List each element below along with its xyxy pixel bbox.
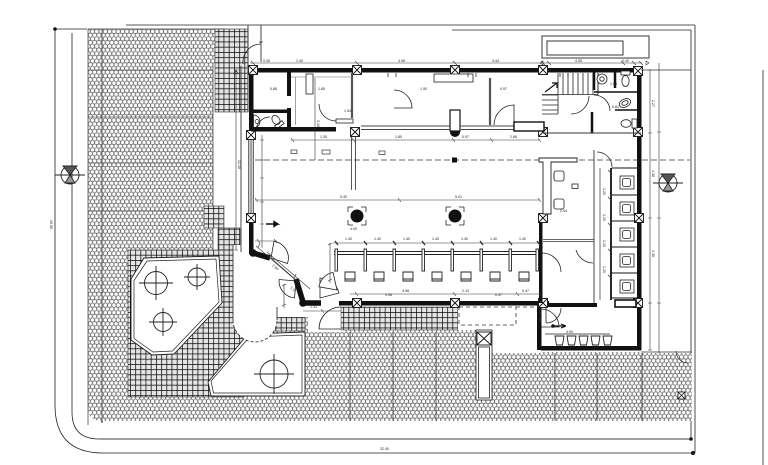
svg-text:2.27: 2.27 <box>651 100 655 107</box>
svg-text:1.40: 1.40 <box>403 237 410 241</box>
svg-text:0.47: 0.47 <box>522 289 529 293</box>
svg-text:5.40: 5.40 <box>340 195 347 199</box>
svg-text:1.05: 1.05 <box>610 82 617 86</box>
svg-text:0.40: 0.40 <box>622 59 629 63</box>
svg-text:4.98: 4.98 <box>385 293 392 297</box>
svg-text:1.40: 1.40 <box>461 237 468 241</box>
svg-text:1.85: 1.85 <box>395 135 402 139</box>
svg-text:1.20: 1.20 <box>602 240 606 247</box>
svg-text:1.40: 1.40 <box>345 237 352 241</box>
svg-text:4.98: 4.98 <box>398 59 405 63</box>
svg-text:1.20: 1.20 <box>602 214 606 221</box>
svg-text:4.55: 4.55 <box>575 59 582 63</box>
svg-text:12.19: 12.19 <box>237 160 241 169</box>
svg-text:1.20: 1.20 <box>602 266 606 273</box>
svg-text:2.66: 2.66 <box>510 135 517 139</box>
svg-text:1.40: 1.40 <box>519 237 526 241</box>
svg-text:0.97: 0.97 <box>500 87 507 91</box>
svg-text:1.40: 1.40 <box>490 237 497 241</box>
svg-text:4.09: 4.09 <box>350 227 357 231</box>
svg-text:1.40: 1.40 <box>374 237 381 241</box>
svg-text:1.30: 1.30 <box>320 135 327 139</box>
svg-text:19.95: 19.95 <box>49 220 53 229</box>
svg-text:0.40: 0.40 <box>263 59 270 63</box>
svg-text:2.13: 2.13 <box>462 289 469 293</box>
svg-text:0.47: 0.47 <box>495 293 502 297</box>
svg-text:1.40: 1.40 <box>432 237 439 241</box>
svg-text:4.35: 4.35 <box>651 250 655 257</box>
svg-text:2.44: 2.44 <box>560 209 567 213</box>
svg-text:32.40: 32.40 <box>380 447 389 451</box>
svg-text:1.31: 1.31 <box>310 305 317 309</box>
svg-text:5.41: 5.41 <box>455 195 462 199</box>
svg-text:1.20: 1.20 <box>602 188 606 195</box>
svg-text:1.40: 1.40 <box>296 59 303 63</box>
svg-text:0.88: 0.88 <box>270 87 277 91</box>
svg-text:0.81: 0.81 <box>612 105 619 109</box>
svg-text:1.90: 1.90 <box>420 87 427 91</box>
svg-text:4.98: 4.98 <box>402 289 409 293</box>
svg-text:4.44: 4.44 <box>492 59 499 63</box>
svg-text:0.97: 0.97 <box>462 135 469 139</box>
svg-text:1.54: 1.54 <box>344 109 351 113</box>
svg-text:3.10: 3.10 <box>316 120 320 127</box>
svg-text:4.90: 4.90 <box>566 330 573 334</box>
svg-text:1.85: 1.85 <box>318 87 325 91</box>
svg-text:4.38: 4.38 <box>651 170 655 177</box>
